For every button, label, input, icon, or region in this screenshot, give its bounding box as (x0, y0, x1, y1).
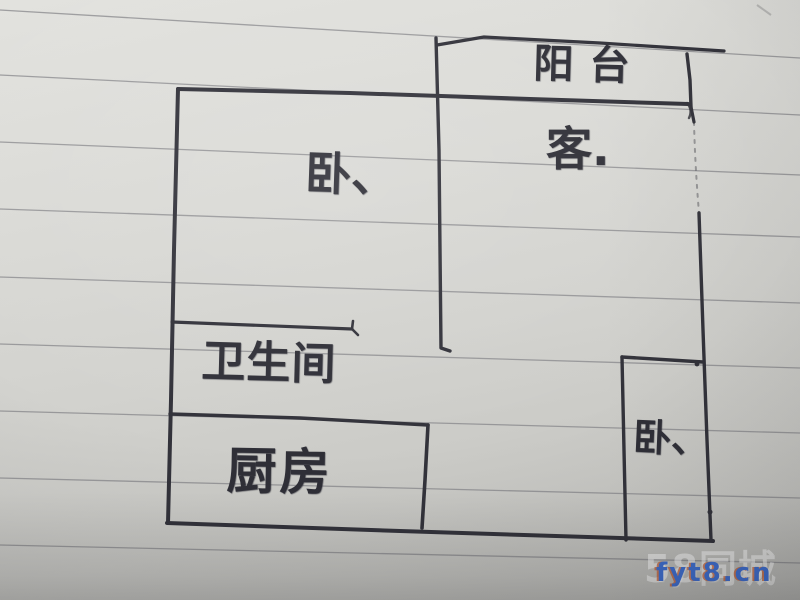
ink-dot-right-wall (708, 510, 713, 515)
ink-dot-smallroom-corner (695, 362, 700, 367)
wall-right-faint-dashed (694, 122, 699, 213)
wall-bathroom-arrow-tip (352, 321, 358, 335)
wall-kitchen-top (170, 414, 428, 425)
room-label-kitchen: 厨房 (226, 446, 333, 498)
wall-left (168, 89, 178, 523)
ruled-line (0, 142, 800, 175)
ruled-line (0, 277, 800, 303)
room-label-bathroom: 卫生间 (201, 340, 337, 388)
ruled-line (0, 209, 800, 237)
wall-bottom (167, 523, 713, 541)
wall-right-lower (699, 213, 711, 540)
ruled-line (0, 10, 800, 58)
floorplan-sketch (0, 0, 800, 600)
ruled-line (0, 478, 800, 498)
wall-smallroom-left (622, 357, 626, 540)
room-label-living: 客. (546, 126, 609, 172)
wall-smallroom-top (622, 357, 703, 362)
stray-pencil-mark (757, 5, 771, 15)
floorplan-photo: 卧、 客. 阳台 卫生间 厨房 卧、 58同城 fyt8.cn (0, 0, 800, 600)
wall-middle-vertical (436, 38, 450, 351)
wall-top-main (178, 89, 688, 104)
room-label-bedroom-main: 卧、 (304, 150, 398, 199)
wall-balcony-right (687, 54, 691, 107)
room-label-bedroom-small: 卧、 (632, 418, 710, 459)
watermark-site-text: fyt8.cn (656, 560, 773, 586)
wall-kitchen-right (422, 425, 428, 528)
ruled-line (0, 344, 800, 368)
wall-bathroom-top (172, 322, 352, 329)
room-label-balcony: 阳台 (533, 44, 646, 87)
